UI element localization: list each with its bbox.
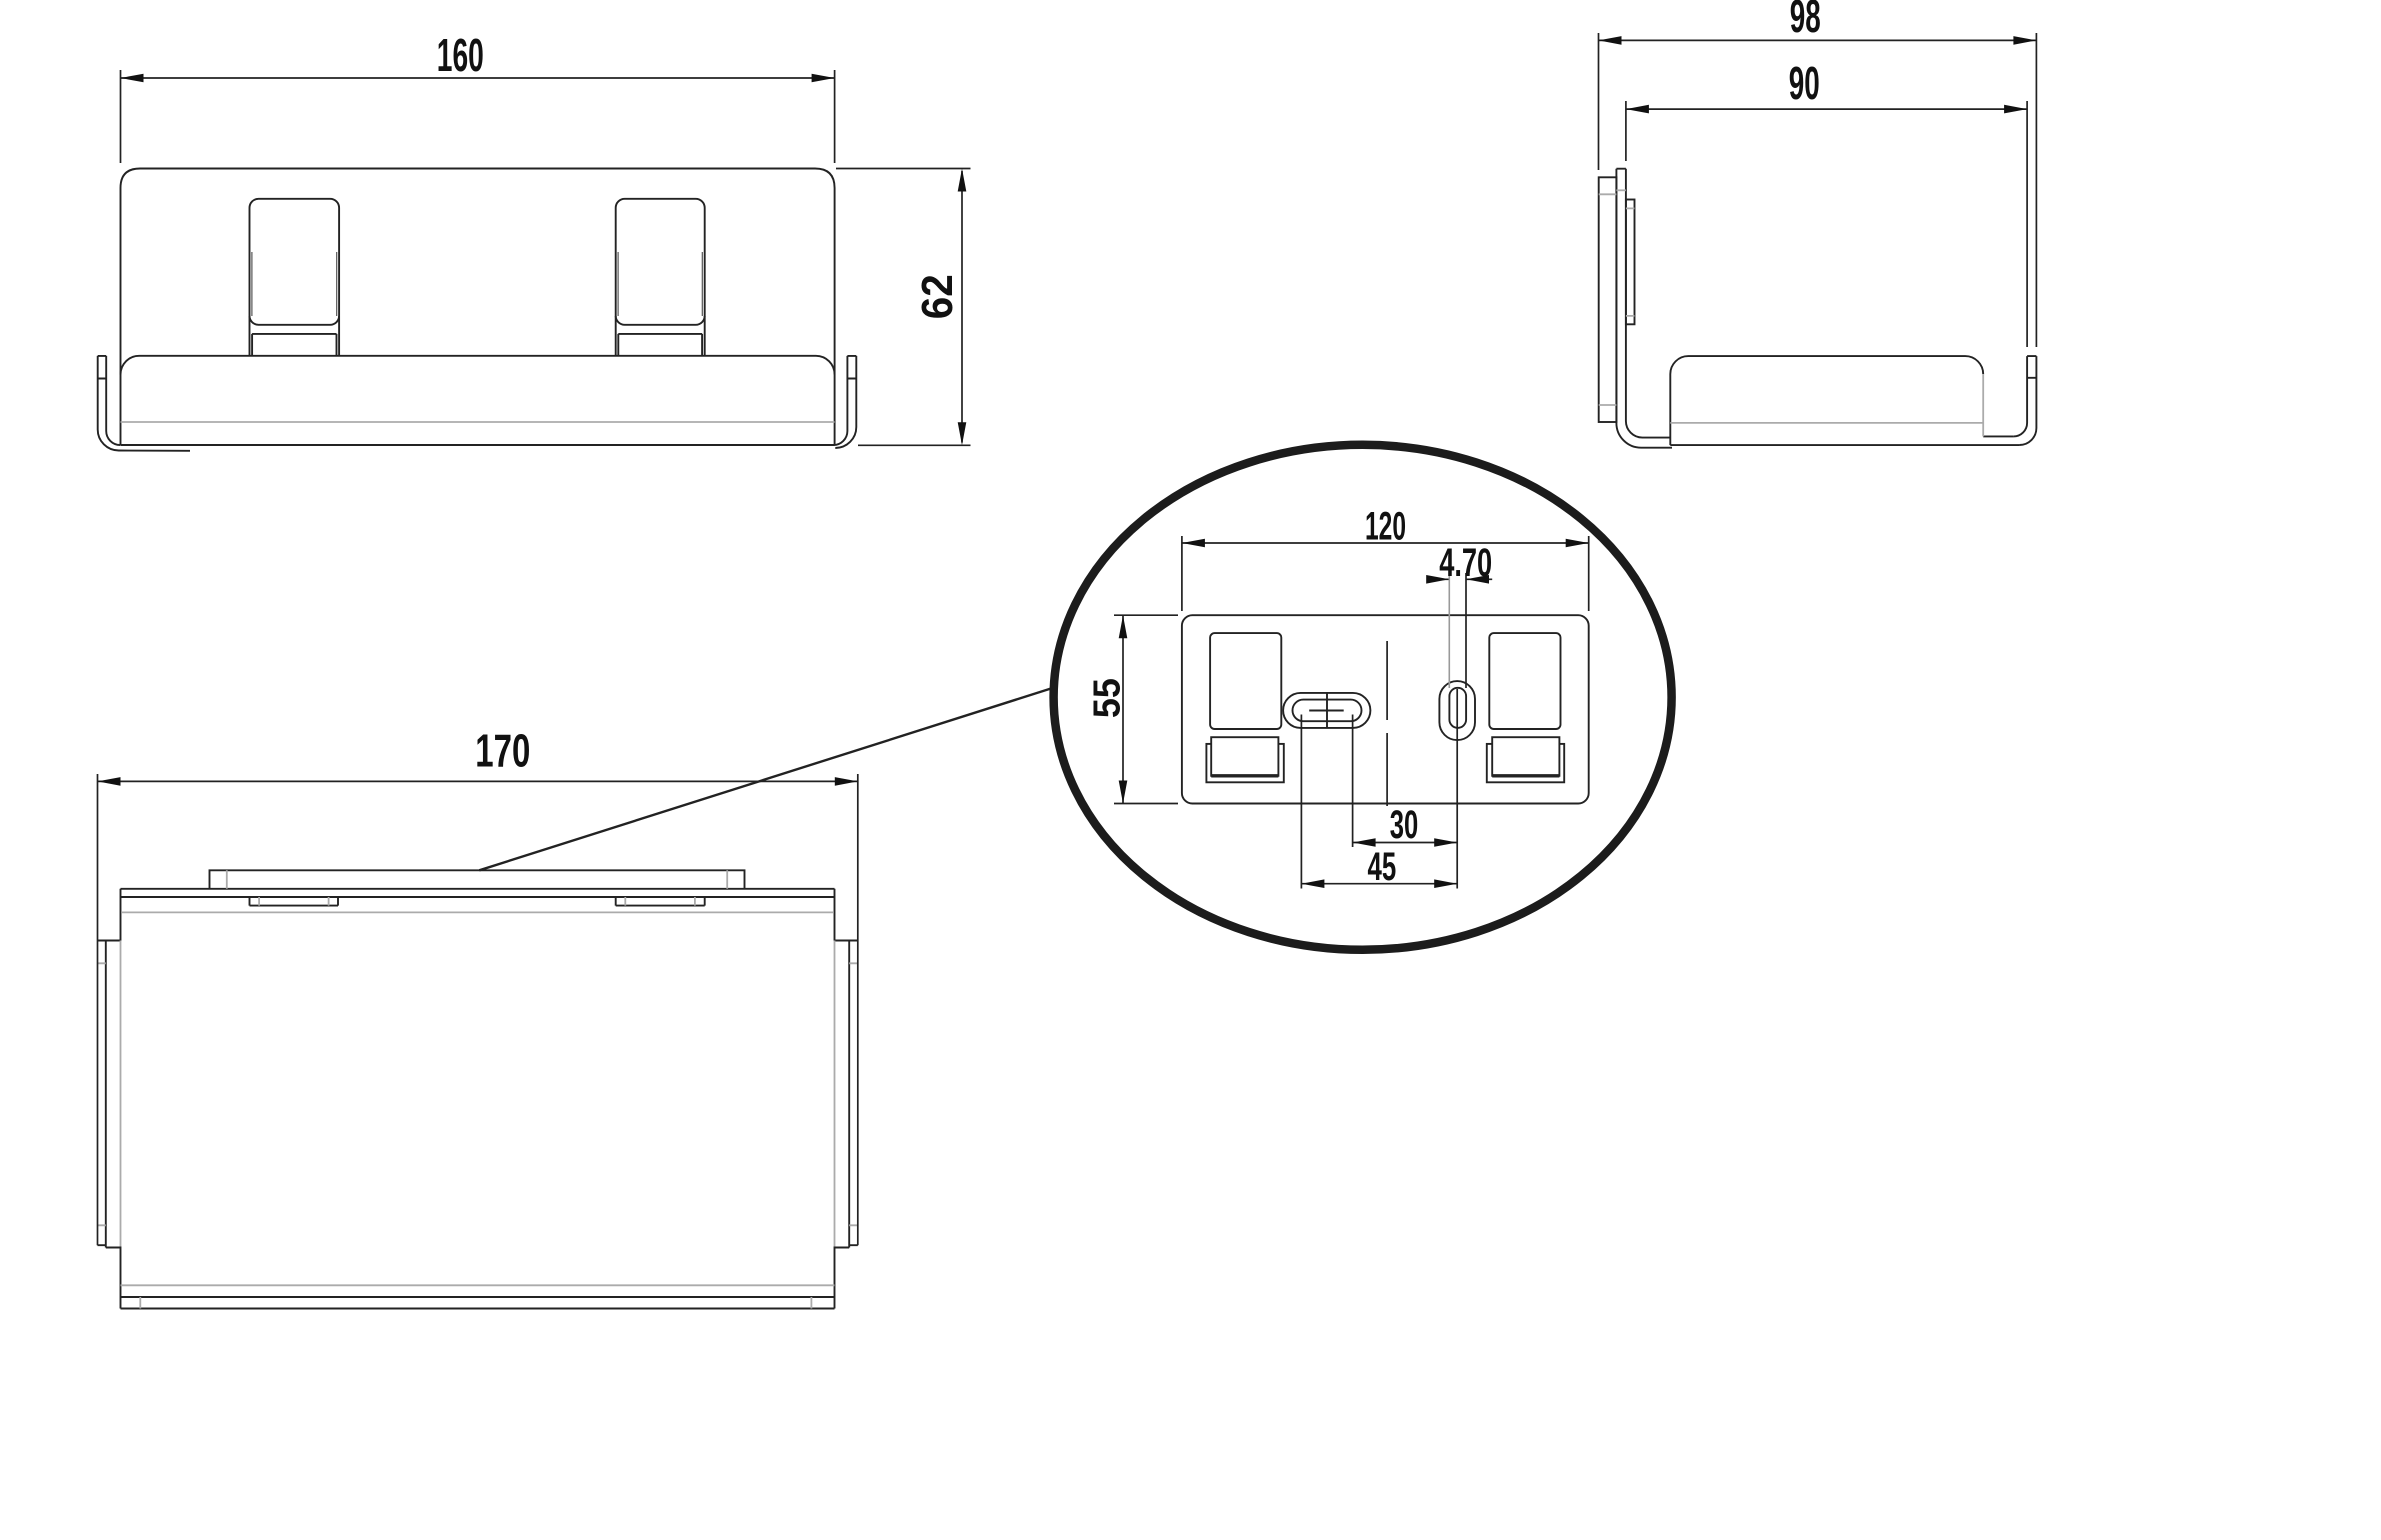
svg-text:45: 45 <box>1368 845 1397 889</box>
svg-text:62: 62 <box>913 274 962 319</box>
svg-text:98: 98 <box>1790 0 1821 42</box>
svg-text:120: 120 <box>1365 504 1406 548</box>
svg-text:90: 90 <box>1789 57 1820 109</box>
svg-text:160: 160 <box>437 29 484 81</box>
svg-text:55: 55 <box>1087 678 1129 718</box>
svg-text:170: 170 <box>475 725 530 777</box>
svg-text:30: 30 <box>1390 803 1419 847</box>
svg-text:4.70: 4.70 <box>1439 541 1492 585</box>
